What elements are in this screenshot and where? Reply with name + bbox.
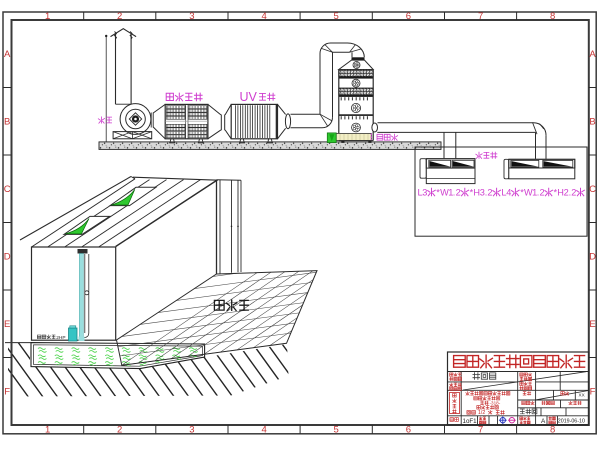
svg-text:F: F <box>4 387 10 398</box>
svg-text:A: A <box>589 49 596 60</box>
svg-text:8: 8 <box>550 11 555 22</box>
svg-text:1: 1 <box>45 425 50 436</box>
svg-text:5: 5 <box>334 11 339 22</box>
svg-text:8: 8 <box>550 425 555 436</box>
svg-text:UV: UV <box>240 90 258 104</box>
svg-text:1oF1: 1oF1 <box>463 418 478 425</box>
svg-text:2: 2 <box>117 11 122 22</box>
svg-text:7: 7 <box>478 11 483 22</box>
svg-text:D: D <box>4 252 11 263</box>
svg-text:4: 4 <box>261 425 266 436</box>
svg-text:2019-06-10: 2019-06-10 <box>558 419 585 425</box>
svg-text:XX: XX <box>579 392 585 397</box>
svg-text:4: 4 <box>261 11 266 22</box>
svg-text:1: 1 <box>45 11 50 22</box>
svg-text:D: D <box>589 252 596 263</box>
svg-text:2: 2 <box>540 187 545 197</box>
svg-text:2HP: 2HP <box>56 335 65 341</box>
svg-text:C: C <box>589 184 596 195</box>
svg-text:1/2: 1/2 <box>478 410 485 416</box>
svg-text:A: A <box>541 418 546 425</box>
svg-text:2: 2 <box>487 187 492 197</box>
svg-text:F: F <box>590 387 596 398</box>
svg-text:E: E <box>4 319 10 330</box>
svg-text:3: 3 <box>189 425 194 436</box>
svg-text:2: 2 <box>571 187 576 197</box>
svg-text:C: C <box>4 184 11 195</box>
svg-text:3: 3 <box>422 187 427 197</box>
svg-text:5: 5 <box>334 425 339 436</box>
svg-text:2: 2 <box>456 187 461 197</box>
svg-text:3: 3 <box>189 11 194 22</box>
svg-text:7: 7 <box>478 425 483 436</box>
svg-text:6: 6 <box>406 11 411 22</box>
svg-text:-318-: -318- <box>490 401 501 406</box>
svg-text:2: 2 <box>117 425 122 436</box>
svg-text:B: B <box>4 117 10 128</box>
svg-text:6: 6 <box>406 425 411 436</box>
svg-text:A: A <box>4 49 11 60</box>
svg-text:E: E <box>589 319 595 330</box>
svg-text:B: B <box>589 117 595 128</box>
svg-text:4: 4 <box>506 187 511 197</box>
